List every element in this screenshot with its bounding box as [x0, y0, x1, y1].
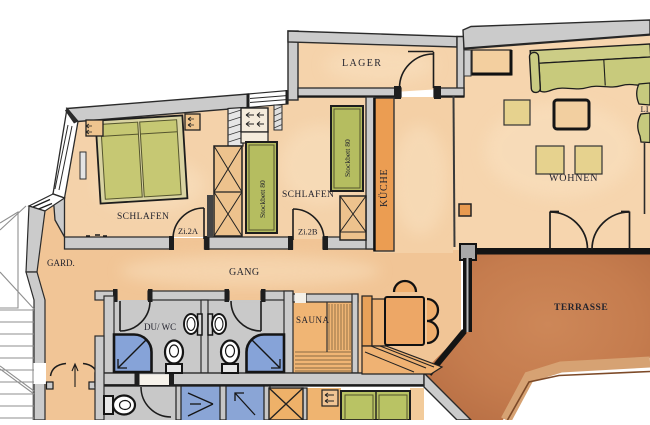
svg-text:LAGER: LAGER — [342, 58, 382, 69]
svg-text:DU/ WC: DU/ WC — [144, 322, 176, 332]
svg-text:Zi.2A: Zi.2A — [178, 226, 199, 236]
svg-text:GARD.: GARD. — [47, 258, 75, 268]
svg-text:SCHLAFEN: SCHLAFEN — [117, 212, 169, 222]
svg-text:KÜCHE: KÜCHE — [378, 169, 390, 207]
svg-text:LI: LI — [641, 104, 649, 114]
svg-text:TERRASSE: TERRASSE — [554, 303, 608, 313]
svg-text:Stockbett 80: Stockbett 80 — [258, 180, 267, 218]
svg-text:Stockbett 80: Stockbett 80 — [343, 139, 352, 177]
svg-text:SCHLAFEN: SCHLAFEN — [282, 190, 334, 200]
svg-text:GANG: GANG — [229, 267, 260, 278]
svg-text:Zi.2B: Zi.2B — [298, 227, 318, 237]
svg-text:SAUNA: SAUNA — [296, 315, 330, 325]
svg-text:WOHNEN: WOHNEN — [549, 173, 598, 184]
